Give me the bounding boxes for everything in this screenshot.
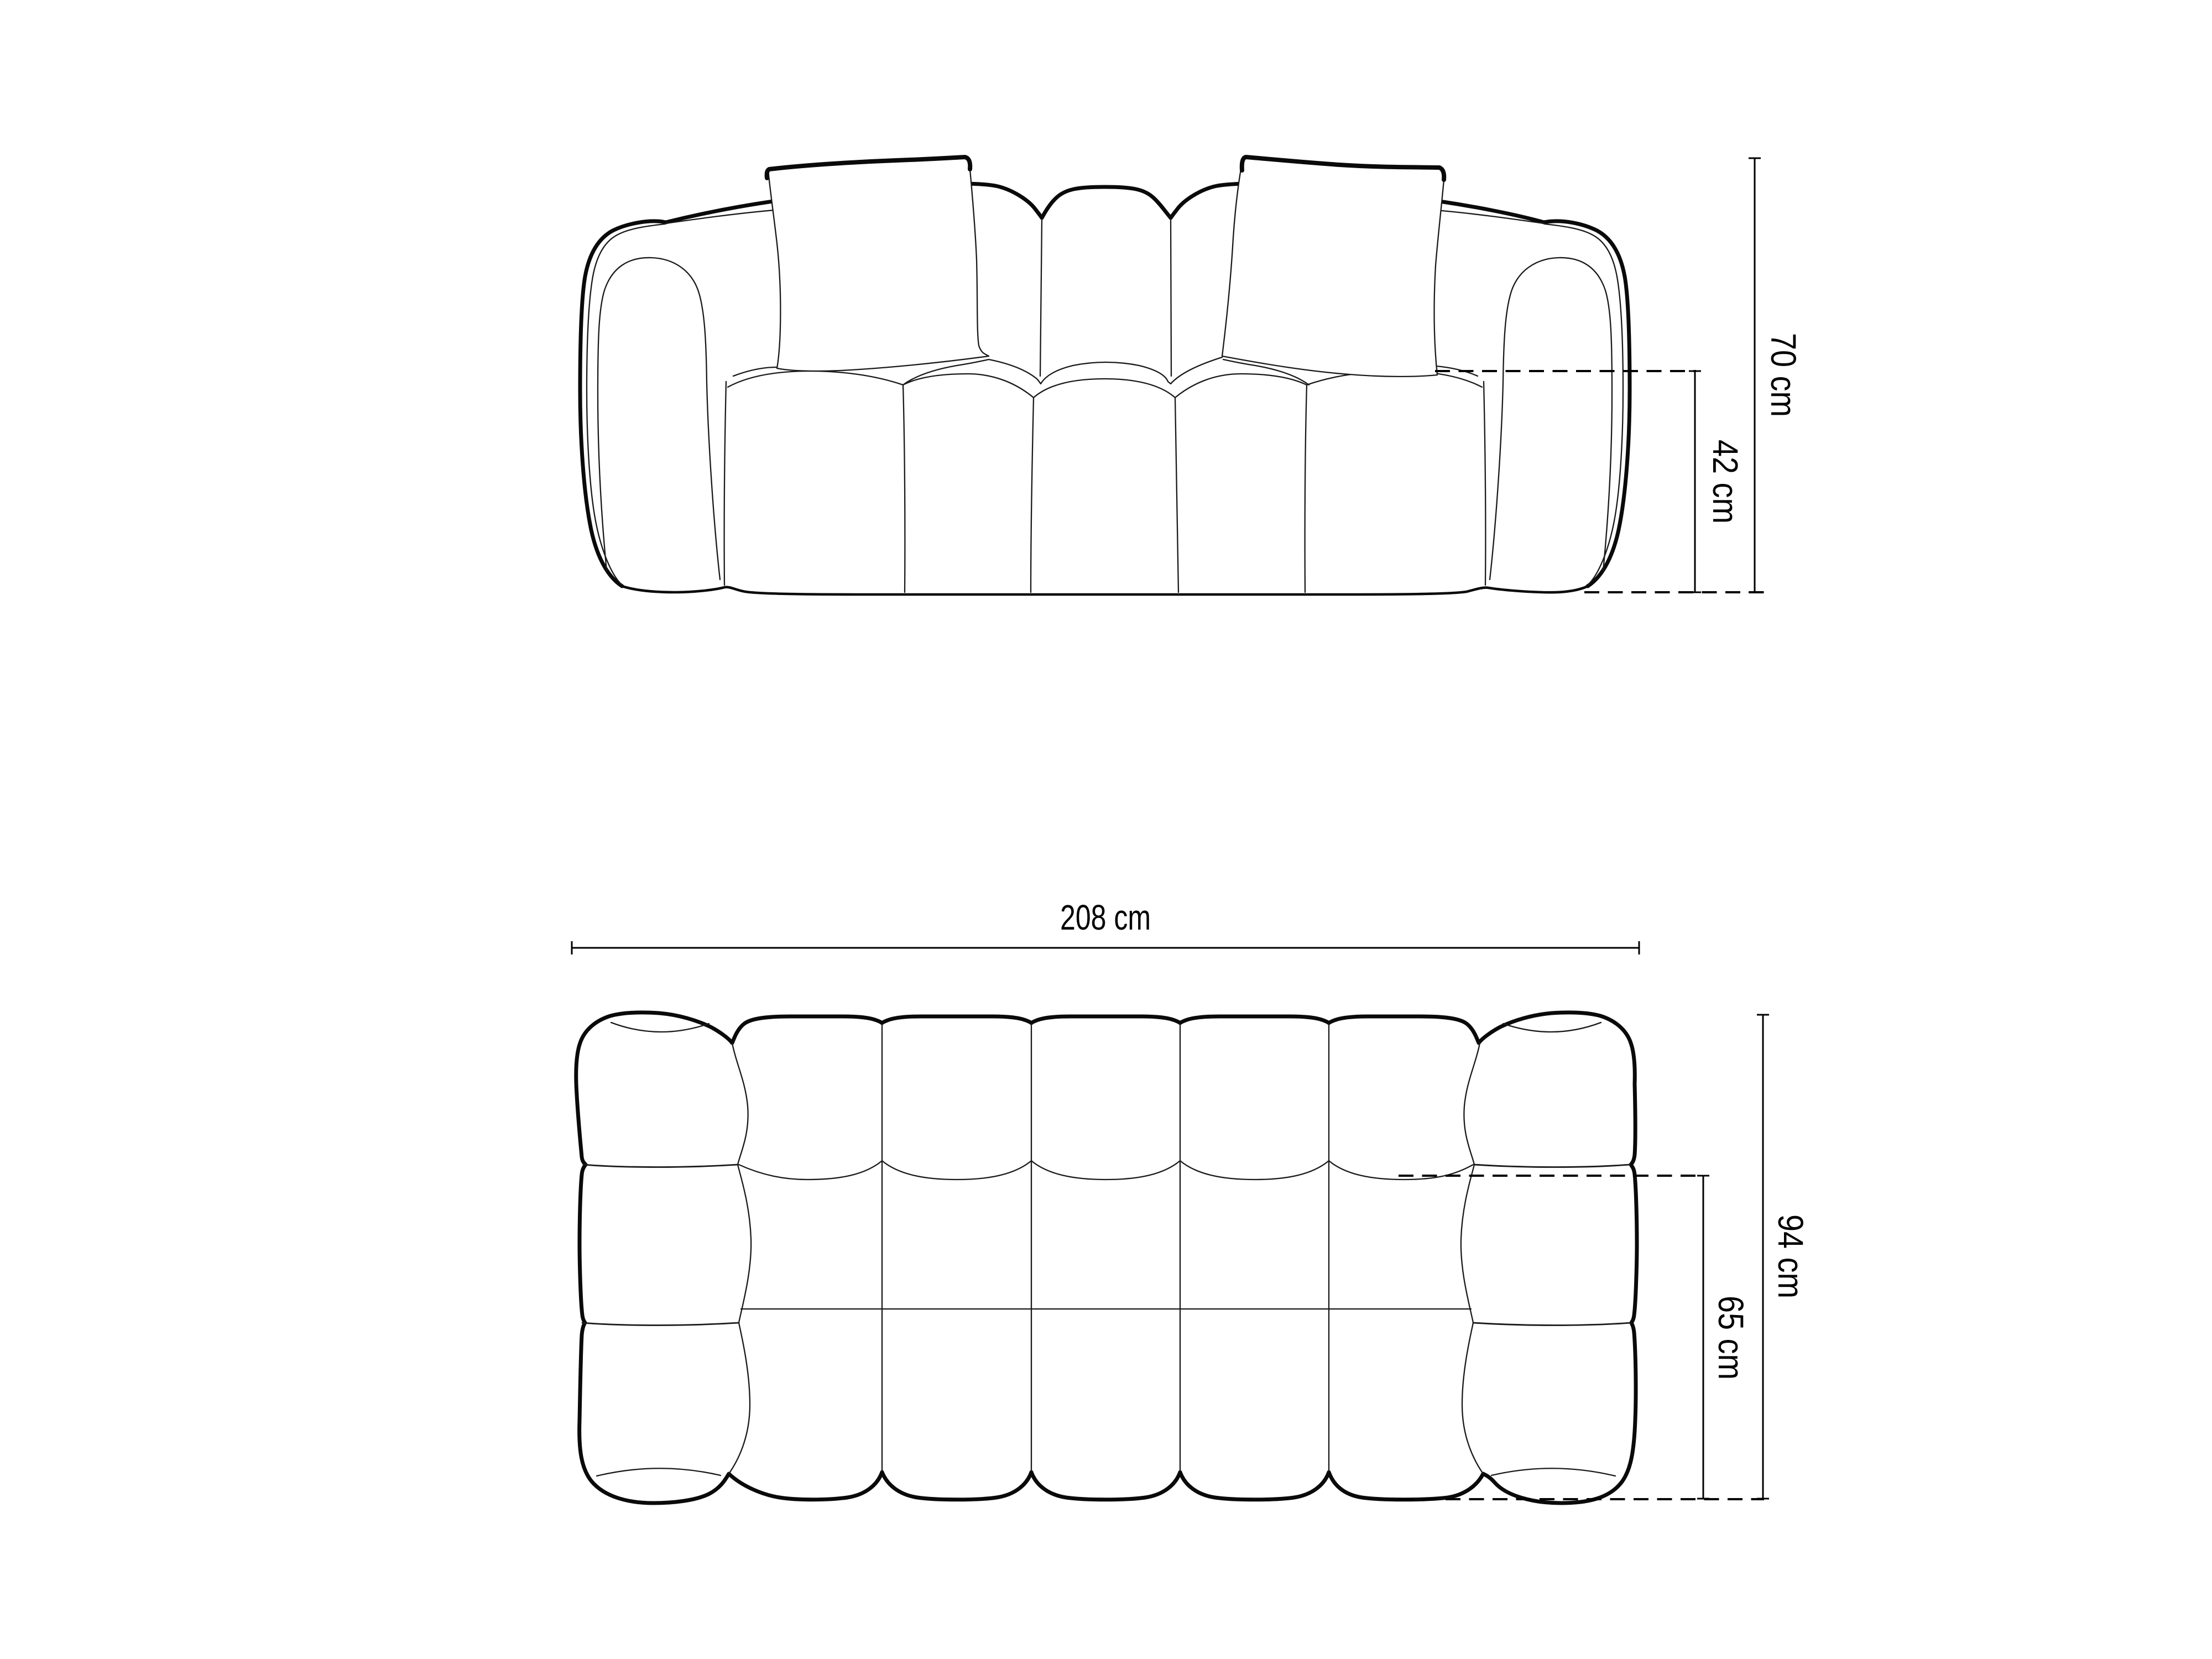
svg-text:42 cm: 42 cm bbox=[1705, 440, 1745, 524]
svg-text:94 cm: 94 cm bbox=[1771, 1214, 1811, 1298]
svg-text:70 cm: 70 cm bbox=[1764, 333, 1803, 417]
svg-text:208 cm: 208 cm bbox=[1060, 898, 1151, 937]
svg-text:65 cm: 65 cm bbox=[1711, 1296, 1751, 1380]
